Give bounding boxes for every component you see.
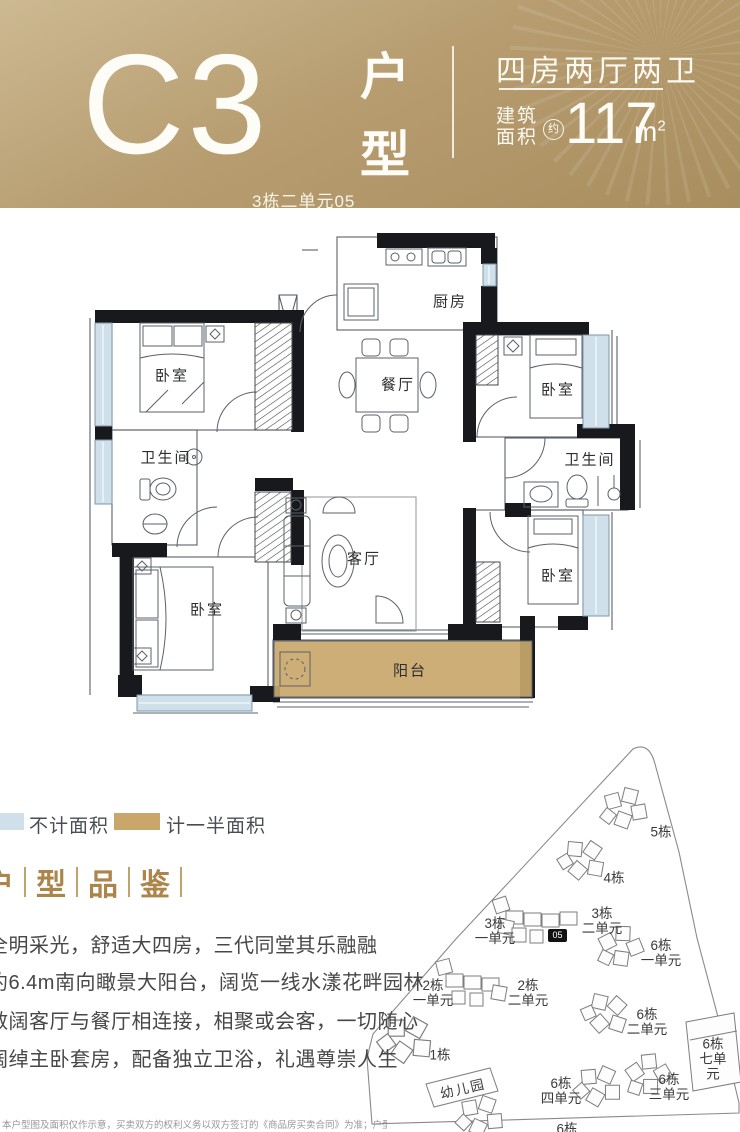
plan-structural-walls [95, 233, 635, 702]
sitemap-label-b6u1: 6栋 一单元 [641, 938, 682, 968]
bedroom-label: 卧室 [541, 379, 575, 400]
flyer-page: C3 3栋二单元05 户 型 四房两厅两卫 建筑 面积 约 117 m2 [0, 0, 740, 1132]
section-char: 鉴 [140, 860, 170, 904]
nightstand-icon [206, 326, 224, 342]
sitemap-label-b5: 5栋 [650, 824, 671, 839]
corner-chair-icon [376, 596, 403, 623]
sitemap-label-b6u4: 6栋 四单元 [541, 1076, 582, 1106]
disclaimer-text: 本户型图及面积仅作示意，买卖双方的权利义务以双方签订的《商品房买卖合同》为准；户… [2, 1117, 387, 1131]
sitemap-label-b6u7: 6栋 七单元 [700, 1036, 727, 1081]
fridge-icon [344, 284, 378, 320]
kitchen-sink-icon [428, 248, 466, 266]
armchair-icon [323, 497, 355, 513]
sitemap-label-b2u1: 2栋 一单元 [413, 978, 454, 1008]
sitemap-label-b2u2: 2栋 二单元 [508, 978, 549, 1008]
bedroom-label: 卧室 [190, 599, 224, 620]
toilet-icon [566, 475, 588, 507]
legend-swatch-half-area [114, 813, 160, 830]
legend-label-half-area: 计一半面积 [166, 811, 266, 838]
legend-label-no-area: 不计面积 [29, 811, 109, 838]
ceiling-lamp-icon [504, 337, 522, 355]
section-char: 品 [88, 860, 118, 904]
bathroom-label: 卫生间 [564, 449, 615, 470]
legend-swatch-no-area [0, 813, 24, 830]
stove-icon [386, 249, 422, 265]
sitemap-label-b6partial: 6栋 [556, 1121, 577, 1132]
sitemap-label-b6u3: 6栋 三单元 [649, 1072, 690, 1102]
bedroom-label: 卧室 [541, 565, 575, 586]
section-char: 户 [0, 860, 14, 904]
balcony-label: 阳台 [393, 660, 427, 681]
bedroom-label: 卧室 [155, 365, 189, 386]
sitemap-label-b4: 4栋 [603, 870, 624, 885]
shower-icon [598, 475, 620, 506]
dining-label: 餐厅 [381, 374, 415, 395]
sitemap-label-b3u1: 3栋 一单元 [475, 916, 516, 946]
feature-line: 阔绰主卧套房，配备独立卫浴，礼遇尊崇人生 [0, 1043, 398, 1072]
section-char: 型 [36, 860, 66, 904]
sitemap-label-b3u2: 3栋 二单元 [582, 906, 623, 936]
bed-icon [528, 516, 578, 604]
living-label: 客厅 [347, 548, 381, 569]
bed-icon [530, 335, 582, 418]
feature-line: 约6.4m南向瞰景大阳台，阔览一线水漾花畔园林 [0, 966, 424, 995]
toilet-icon [140, 478, 176, 500]
section-title: 户型品鉴 [0, 860, 192, 904]
kitchen-label: 厨房 [433, 291, 467, 312]
sitemap-label-b6u2: 6栋 二单元 [627, 1007, 668, 1037]
bathroom-label: 卫生间 [140, 447, 191, 468]
feature-line: 敞阔客厅与餐厅相连接，相聚或会客，一切随心 [0, 1005, 419, 1034]
sitemap-label-b1: 1栋 [429, 1047, 450, 1062]
unit-05-badge: 05 [548, 929, 567, 942]
feature-line: 全明采光，舒适大四房，三代同堂其乐融融 [0, 929, 378, 958]
